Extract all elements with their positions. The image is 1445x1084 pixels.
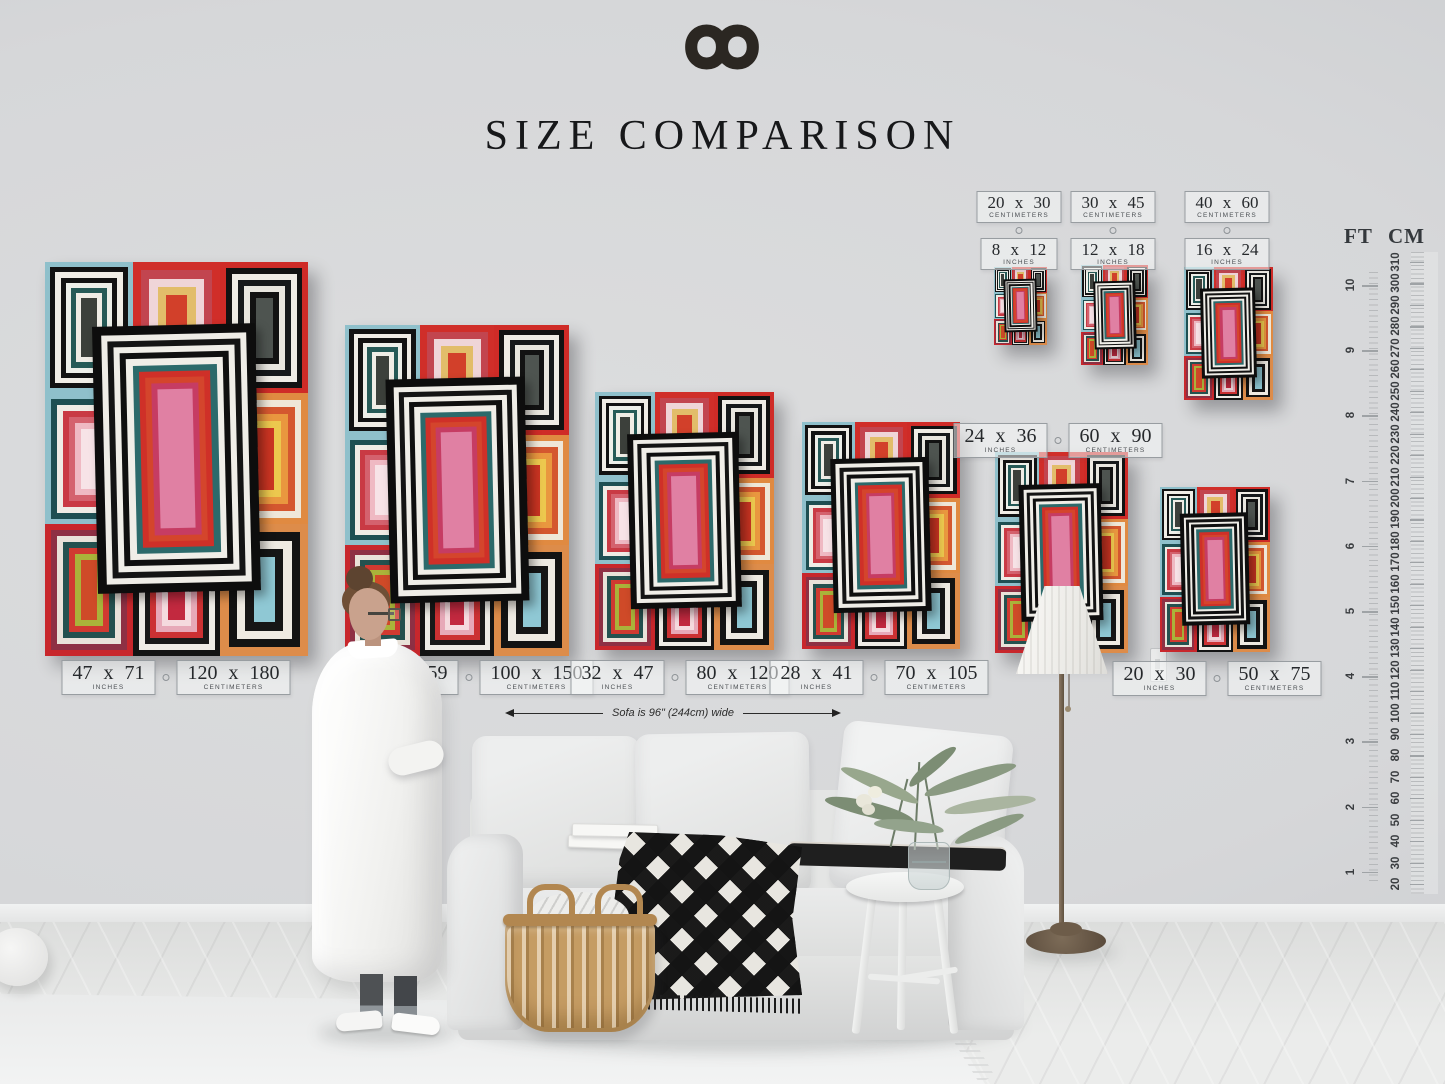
jeans	[394, 976, 417, 1016]
jeans	[360, 974, 383, 1016]
lamp-base	[1026, 928, 1106, 954]
sneaker	[335, 1010, 382, 1032]
size-comparison-mockup: SIZE COMPARISON 47 x 71INCHES120 x 180CE…	[0, 0, 1445, 1084]
lamp-pole	[1059, 672, 1064, 938]
white-coat	[312, 642, 442, 982]
sneaker	[391, 1012, 441, 1036]
lamp-pull-knob	[1065, 706, 1071, 712]
lamp-shade	[1016, 586, 1108, 674]
living-room-scene	[0, 0, 1445, 1084]
glasses-lens	[388, 608, 401, 621]
floor-lamp	[0, 0, 1445, 1084]
person-standing	[308, 566, 454, 1046]
